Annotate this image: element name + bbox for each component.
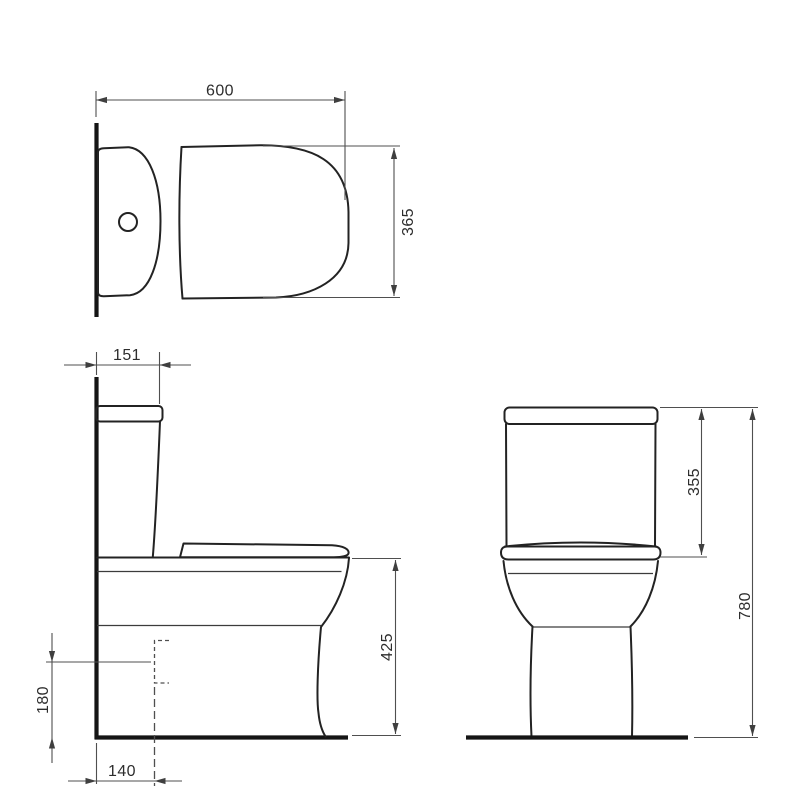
arrowhead — [391, 148, 397, 159]
dim-label-151: 151 — [113, 347, 141, 364]
arrowhead — [49, 738, 55, 749]
arrowhead — [749, 409, 755, 420]
cistern-left-edge — [506, 424, 507, 546]
seat-lid-outline — [182, 145, 349, 298]
pedestal-right-edge — [631, 627, 633, 737]
flush-button — [119, 213, 137, 231]
dim-front-overall-height: 780 — [694, 409, 758, 738]
toilet-dimension-drawing: 600 365 151 — [0, 0, 800, 800]
dim-side-outlet-setout: 140 — [68, 743, 182, 784]
dim-side-cistern-depth: 151 — [64, 347, 191, 404]
arrowhead — [392, 560, 398, 571]
bowl-left-taper — [504, 561, 533, 627]
dim-label-140: 140 — [108, 763, 136, 780]
front-view: 355 780 — [466, 408, 758, 738]
bowl-front-and-pedestal — [317, 558, 349, 737]
arrowhead — [749, 725, 755, 736]
dim-side-outlet-height: 180 — [35, 633, 151, 763]
seat-band — [501, 547, 661, 560]
side-view: 151 425 180 140 — [35, 347, 401, 786]
arrowhead — [391, 285, 397, 296]
dim-top-width: 600 — [96, 83, 345, 201]
dim-top-seat-depth: 365 — [263, 146, 417, 298]
cistern-seat-divider — [179, 147, 182, 299]
arrowhead — [698, 544, 704, 555]
top-view: 600 365 — [96, 83, 417, 318]
arrowhead — [86, 778, 97, 784]
cistern-outline — [98, 147, 161, 296]
technical-drawing-page: 600 365 151 — [0, 0, 800, 800]
cistern-lid — [96, 406, 163, 422]
bowl-right-taper — [631, 561, 659, 627]
arrowhead — [392, 723, 398, 734]
seat-profile — [180, 544, 349, 558]
dim-label-425: 425 — [379, 633, 396, 661]
dim-label-600: 600 — [206, 83, 234, 100]
outlet-hidden-outline — [155, 641, 170, 684]
dim-label-780: 780 — [737, 592, 754, 620]
arrowhead — [96, 97, 107, 103]
arrowhead — [86, 362, 97, 368]
arrowhead — [160, 362, 171, 368]
dim-front-cistern-height: 355 — [660, 408, 758, 558]
dim-label-180: 180 — [35, 686, 52, 714]
arrowhead — [698, 409, 704, 420]
cistern-front-edge — [153, 422, 160, 558]
dim-side-rim-height: 425 — [352, 559, 401, 736]
arrowhead — [49, 651, 55, 662]
dim-label-355: 355 — [686, 468, 703, 496]
cistern-lid — [505, 408, 658, 425]
dim-label-365: 365 — [400, 208, 417, 236]
cistern-right-edge — [655, 424, 656, 546]
arrowhead — [155, 778, 166, 784]
arrowhead — [334, 97, 345, 103]
pedestal-left-edge — [531, 627, 533, 737]
